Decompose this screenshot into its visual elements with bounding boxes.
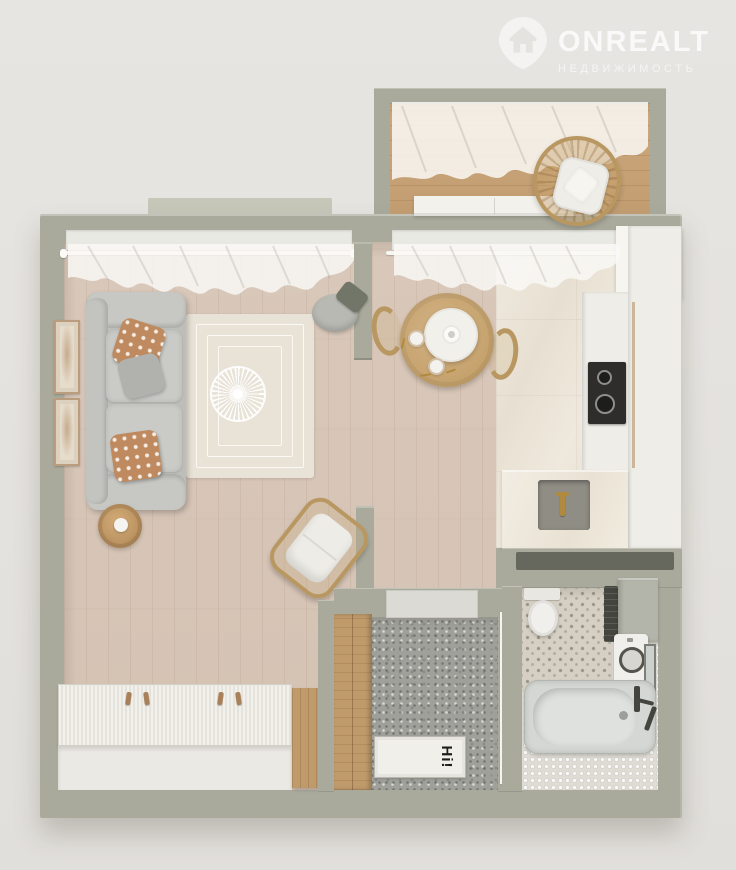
- sideboard-front: [58, 746, 292, 790]
- kitchen-sheer-curtain: [394, 244, 620, 302]
- watermark-brand: ONREALT: [558, 26, 710, 59]
- wall-art: [60, 404, 74, 460]
- doormat-text: Hi!: [438, 746, 455, 769]
- pot-lid-knob: [448, 331, 455, 338]
- hallway-wardrobe: [334, 614, 372, 790]
- rug-medallion-core: [233, 389, 243, 399]
- hallway-doorway-threshold: [386, 590, 478, 618]
- watermark-logo: ONREALT НЕДВИЖИМОСТЬ: [498, 16, 710, 75]
- balcony-right-wall: [650, 88, 666, 216]
- wall-art-frame: [54, 320, 80, 394]
- toilet: [528, 600, 558, 636]
- rug-medallion: [210, 366, 266, 422]
- hanging-rattan-chair: [533, 136, 621, 226]
- bathtub-drain: [619, 711, 628, 720]
- bathroom-left-wall: [502, 586, 522, 792]
- floorplan-canvas: Hi! ONREALT НЕДВИЖИМОСТЬ: [0, 0, 736, 870]
- kitchen-faucet: [560, 494, 565, 516]
- throw-pillow-tan: [109, 429, 163, 483]
- cooktop: [588, 362, 626, 424]
- cup: [114, 518, 128, 532]
- burner: [597, 370, 612, 385]
- bathroom-wall-niche-shadow: [516, 552, 674, 570]
- watermark-subtitle: НЕДВИЖИМОСТЬ: [558, 63, 710, 75]
- wall-art-frame: [54, 398, 80, 466]
- entry-doormat: Hi!: [374, 736, 466, 778]
- wardrobe-seam: [352, 614, 353, 790]
- house-pin-icon: [498, 16, 548, 70]
- living-sheer-curtain: [68, 244, 354, 306]
- kitchen-tall-cabinets: [628, 226, 682, 548]
- hallway-left-wall: [318, 600, 334, 792]
- sofa-backrest: [86, 298, 108, 504]
- washer-panel: [627, 638, 633, 642]
- cabinet-wood-trim: [632, 302, 635, 468]
- place-setting: [408, 330, 425, 347]
- watermark-text: ONREALT НЕДВИЖИМОСТЬ: [558, 26, 710, 75]
- bathroom-vanity: [618, 578, 658, 642]
- washer-door: [619, 647, 645, 673]
- balcony-left-wall: [374, 88, 390, 216]
- toilet-tank: [524, 588, 560, 600]
- sideboard-top: [58, 684, 292, 746]
- wall-art: [60, 326, 74, 388]
- burner: [595, 394, 615, 414]
- balcony-cabinet-seam: [494, 198, 495, 214]
- curtain-rod-knob: [60, 249, 67, 258]
